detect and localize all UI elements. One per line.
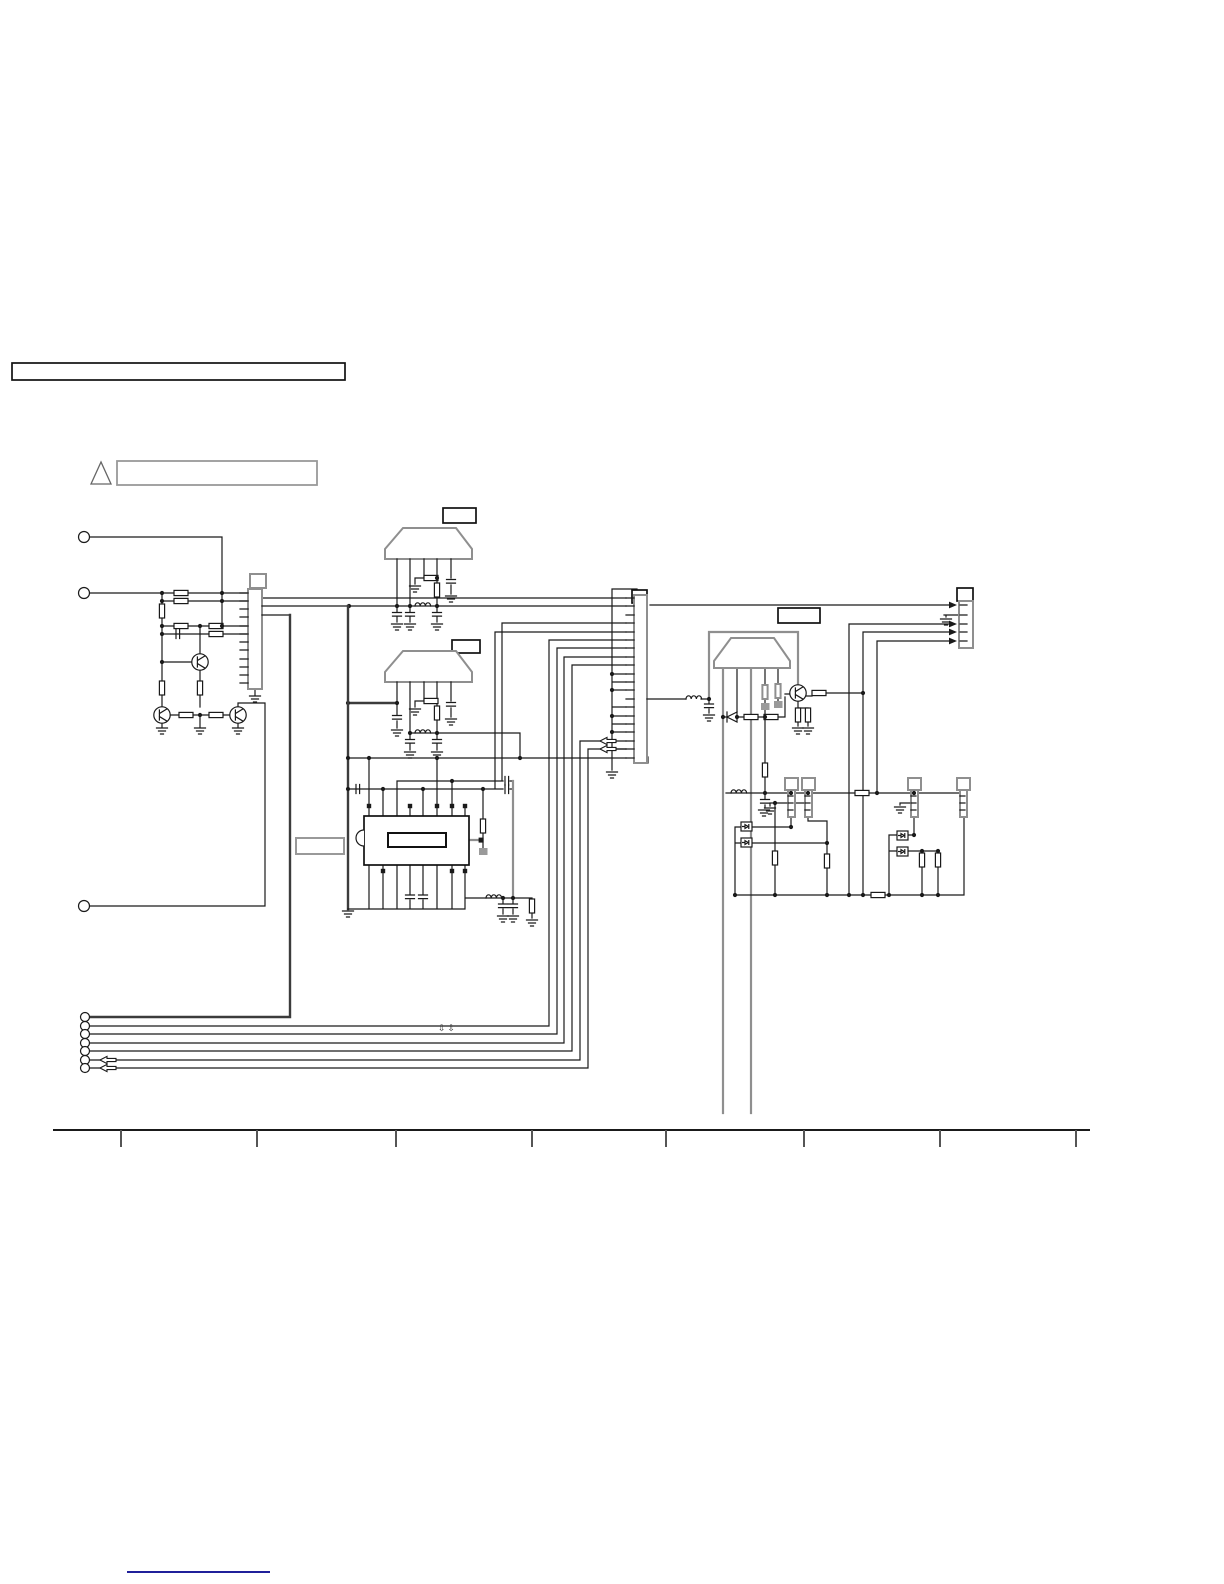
ground-icon xyxy=(446,596,457,602)
fold-ruler xyxy=(53,1130,1090,1147)
diode-component xyxy=(897,831,908,840)
signal-arrow-icon xyxy=(600,737,616,744)
input-terminal-2 xyxy=(79,588,90,599)
bottom-terminal xyxy=(81,1047,90,1056)
ground-icon xyxy=(410,586,421,592)
connector-center-pins xyxy=(626,598,634,758)
bottom-terminal xyxy=(81,1064,90,1073)
title-block xyxy=(12,363,345,380)
signal-arrow-icon xyxy=(100,1064,116,1071)
ground-icon xyxy=(410,709,421,715)
ground-icon xyxy=(432,624,443,630)
ground-icon xyxy=(343,911,354,917)
main-ic xyxy=(296,606,626,926)
ground-icon xyxy=(405,624,416,630)
ic-inner-label-box xyxy=(388,833,446,847)
ground-icon xyxy=(803,728,814,734)
ground-icon xyxy=(446,719,457,725)
ground-icon xyxy=(392,730,403,736)
diode-component xyxy=(741,822,752,831)
ground-icon xyxy=(233,728,244,734)
bottom-terminal xyxy=(81,1013,90,1022)
filter-1-label-box xyxy=(443,508,476,523)
jack-section xyxy=(726,778,970,898)
filter-3-label-box xyxy=(778,608,820,623)
gray-pin-wires xyxy=(723,668,751,1113)
transistor-icon xyxy=(230,707,246,723)
transistor-icon xyxy=(192,654,208,670)
filter-component xyxy=(714,638,790,668)
signal-arrow-icon xyxy=(100,1056,116,1063)
schematic-canvas: ⇩⇩ xyxy=(0,0,1224,1584)
jack-4 xyxy=(957,778,970,817)
bottom-terminal xyxy=(81,1030,90,1039)
signal-arrow-icon xyxy=(949,621,957,628)
jack-1 xyxy=(785,778,798,817)
transistor-icon xyxy=(790,685,806,701)
input-terminal-1 xyxy=(79,532,90,543)
ground-icon xyxy=(793,728,804,734)
ground-icon xyxy=(157,728,168,734)
connector-right-cap xyxy=(957,588,973,601)
connector-left-pins xyxy=(240,593,248,683)
schematic-page: ⇩⇩ xyxy=(0,0,1224,1584)
signal-arrow-icon xyxy=(600,745,616,752)
transistor-icon xyxy=(154,707,170,723)
jack-2 xyxy=(802,778,815,817)
ic-notch xyxy=(356,830,364,846)
warning-box xyxy=(117,461,317,485)
ic-label-box xyxy=(296,838,344,854)
wires xyxy=(90,537,626,906)
ground-icon xyxy=(405,752,416,758)
ground-icon xyxy=(704,715,715,721)
left-input-terminals xyxy=(79,532,90,912)
connector-left-cap xyxy=(250,574,266,588)
wire-marks: ⇩⇩ xyxy=(438,1024,457,1034)
ground-icon xyxy=(895,807,906,813)
diode-component xyxy=(741,838,752,847)
ground-icon xyxy=(195,728,206,734)
filter-component xyxy=(385,528,472,559)
title-box xyxy=(12,363,345,380)
ground-icon xyxy=(527,920,538,926)
input-terminal-3 xyxy=(79,901,90,912)
ground-icon xyxy=(607,772,618,778)
jack-3 xyxy=(908,778,921,817)
ruler-ticks xyxy=(121,1130,1076,1147)
warning-note xyxy=(91,461,317,485)
wires xyxy=(262,606,626,615)
signal-arrow-icon xyxy=(949,629,957,636)
connector-center-body xyxy=(634,595,647,763)
diode-component xyxy=(897,847,908,856)
warning-triangle-icon xyxy=(91,462,111,484)
left-analog-network xyxy=(90,537,626,906)
filter-component xyxy=(385,651,472,682)
ground-icon xyxy=(250,696,261,702)
signal-arrow-icon xyxy=(949,602,957,609)
connector-right xyxy=(949,588,973,648)
filter-3-section xyxy=(647,605,958,1113)
wires xyxy=(726,793,964,895)
ground-icon xyxy=(508,916,519,922)
ground-icon xyxy=(392,624,403,630)
connector-left-body xyxy=(248,589,262,689)
signal-arrow-icon xyxy=(949,638,957,645)
filter-1 xyxy=(347,508,476,630)
filter-2 xyxy=(346,640,522,760)
connector-left xyxy=(90,574,626,1017)
ground-icon xyxy=(498,916,509,922)
